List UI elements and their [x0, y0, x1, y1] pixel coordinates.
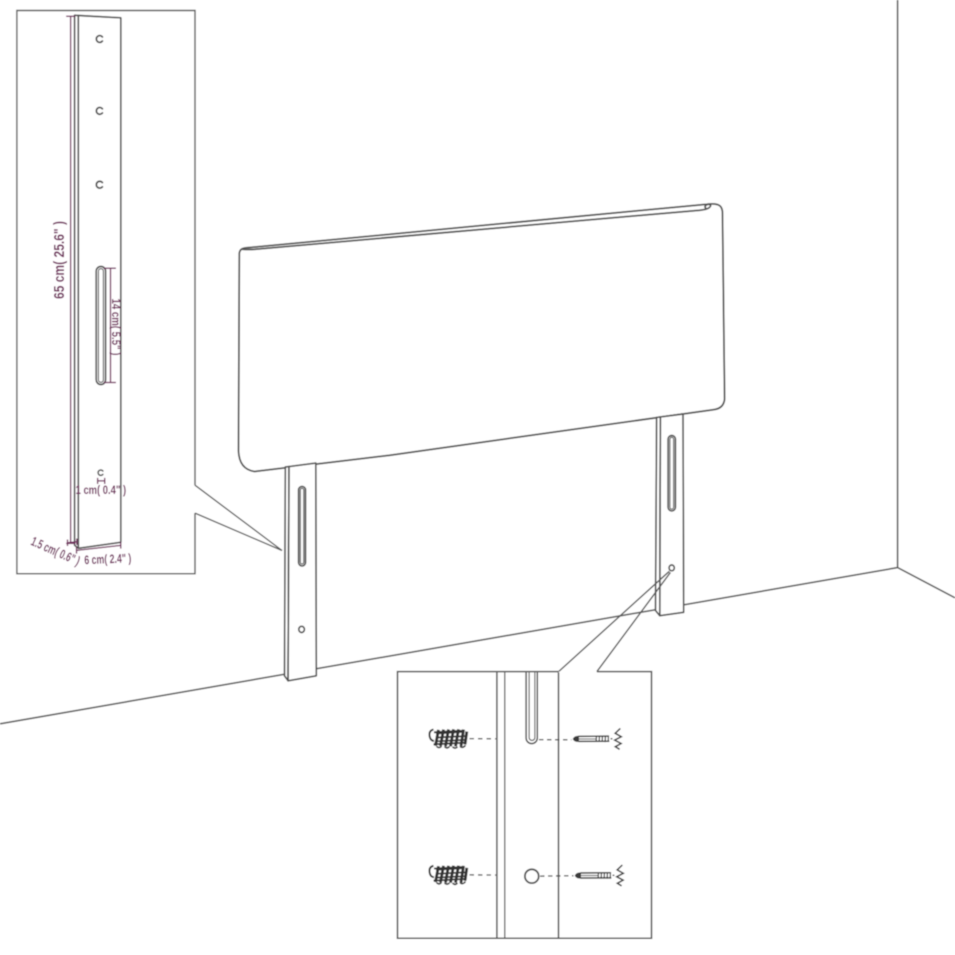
svg-text:14 cm( 5.5" ): 14 cm( 5.5" )	[109, 299, 123, 356]
svg-text:6 cm( 2.4" ): 6 cm( 2.4" )	[84, 551, 132, 567]
svg-text:65 cm( 25.6" ): 65 cm( 25.6" )	[51, 221, 68, 299]
svg-text:1 cm( 0.4" ): 1 cm( 0.4" )	[76, 483, 127, 497]
